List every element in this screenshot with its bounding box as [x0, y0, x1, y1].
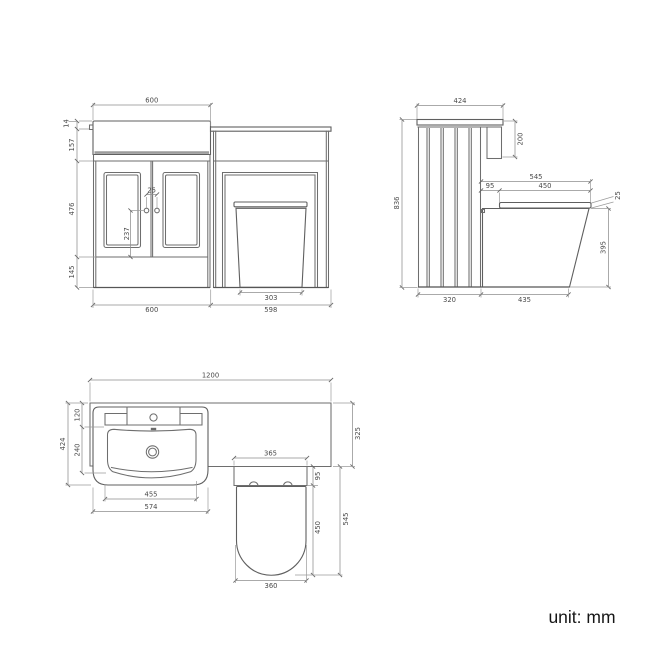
dim-label-handle-height: 237 [123, 227, 131, 240]
side-elevation-view: 424 836 200 545 95 450 25 395 320 435 [393, 97, 622, 304]
plan-view: 1200 424 120 240 455 574 365 325 545 95 … [59, 371, 362, 590]
dim-label-total-width: 1200 [202, 371, 219, 379]
door-knob-left [144, 208, 149, 213]
dim-label-pan-base-width: 303 [265, 294, 278, 302]
dim-label-door-height: 476 [68, 203, 76, 216]
dim-label-bowl-width: 455 [145, 490, 158, 498]
dim-label-basin-drop: 200 [516, 133, 524, 146]
dim-label-pan-front-width: 360 [265, 582, 278, 590]
dim-label-handle-spacing: 25 [147, 186, 156, 194]
toilet-pan-side [483, 209, 590, 288]
front-elevation-view: 600 14 157 476 145 25 237 303 600 598 [63, 96, 332, 314]
dim-label-seat-length-plan: 450 [314, 521, 322, 534]
vanity-basin-front [93, 121, 211, 155]
bathroom-unit-drawing: 600 14 157 476 145 25 237 303 600 598 42… [0, 0, 650, 650]
door-right-frame-outer [163, 173, 200, 248]
dim-label-vanity-width: 600 [145, 306, 158, 314]
toilet-seat-side [500, 203, 592, 209]
dim-label-cabinet-depth: 320 [443, 296, 456, 304]
toilet-seat-plan [237, 487, 307, 576]
dim-label-seat-thickness: 25 [614, 191, 622, 200]
dim-label-pan-height: 395 [600, 241, 608, 254]
dim-label-wc-unit-width: 598 [264, 306, 277, 314]
dim-label-basin-overhang: 14 [63, 119, 71, 128]
dim-label-bowl-depth: 240 [74, 444, 82, 457]
worktop-side [417, 120, 503, 126]
dim-label-pan-projection-side: 435 [518, 296, 531, 304]
dim-label-back-ledge: 120 [74, 409, 82, 422]
toilet-pan-front [236, 208, 306, 287]
vanity-cabinet-front [94, 155, 211, 288]
dim-label-seat-setback-plan: 95 [314, 472, 322, 481]
dim-label-seat-length-side: 450 [539, 182, 552, 190]
dim-label-basin-width: 574 [145, 503, 158, 511]
dim-label-seat-overall: 545 [530, 173, 543, 181]
overflow-slot [151, 428, 156, 430]
dim-label-top-width: 600 [145, 96, 158, 104]
dim-label-seat-setback-side: 95 [486, 182, 495, 190]
dim-label-worktop-depth: 325 [354, 427, 362, 440]
dim-label-basin-depth: 424 [59, 438, 67, 451]
unit-label: unit: mm [548, 607, 615, 627]
dim-label-pan-recess-width: 365 [264, 449, 277, 457]
dim-label-pan-projection-plan: 545 [342, 513, 350, 526]
dim-label-upper-height: 157 [68, 139, 76, 152]
dim-label-plinth-height: 145 [68, 266, 76, 279]
toilet-recess-plan [234, 467, 307, 486]
technical-drawing-page: 600 14 157 476 145 25 237 303 600 598 42… [0, 0, 650, 650]
basin-apron-side [487, 127, 502, 159]
side-panel-grooves [427, 129, 471, 288]
dim-label-top-depth: 424 [454, 97, 467, 105]
door-right-frame-inner [166, 175, 198, 245]
wc-worktop-front [211, 127, 332, 131]
dim-label-total-height: 836 [393, 197, 401, 210]
door-knob-right [155, 208, 160, 213]
toilet-seat-front [234, 202, 307, 207]
